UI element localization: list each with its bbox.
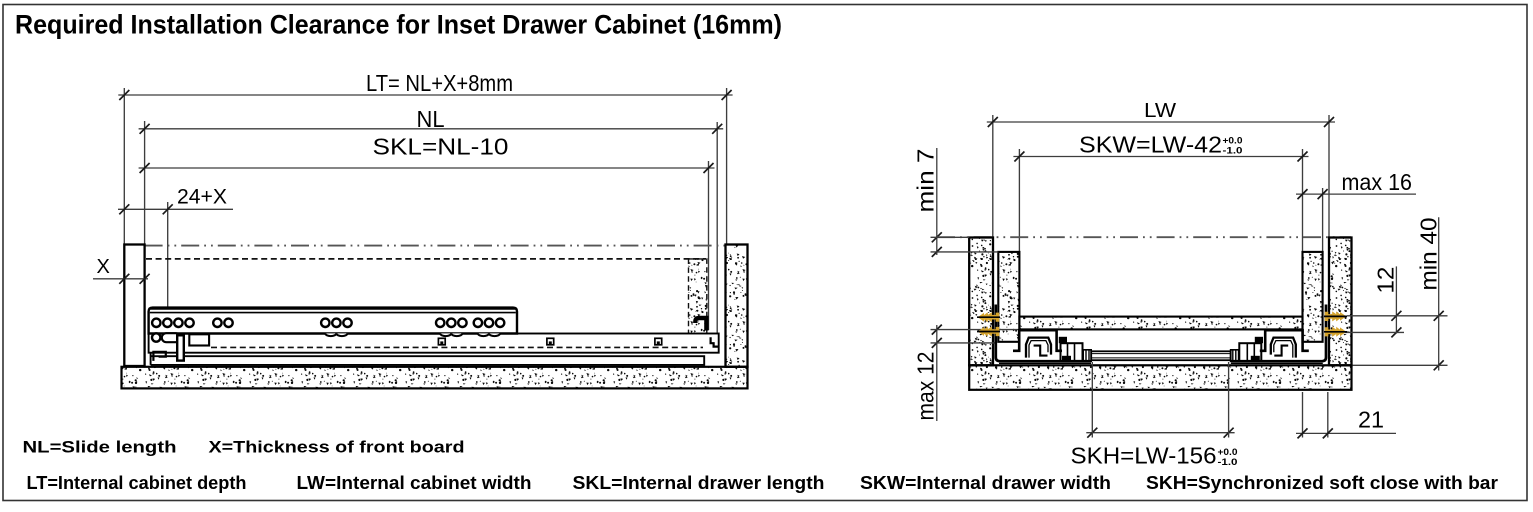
svg-text:LW: LW	[1144, 100, 1176, 122]
svg-text:SKH=Synchronized soft close wi: SKH=Synchronized soft close with bar	[1146, 473, 1498, 493]
svg-text:-1.0: -1.0	[1223, 146, 1243, 157]
svg-text:-1.0: -1.0	[1218, 457, 1238, 468]
svg-text:24+X: 24+X	[177, 185, 227, 208]
svg-text:min 7: min 7	[913, 149, 939, 213]
svg-text:max 16: max 16	[1342, 169, 1413, 195]
svg-text:NL: NL	[417, 106, 445, 132]
svg-text:21: 21	[1358, 407, 1384, 433]
svg-text:12: 12	[1373, 267, 1399, 294]
svg-text:X=Thickness of front board: X=Thickness of front board	[209, 438, 465, 457]
svg-text:SKL=NL-10: SKL=NL-10	[373, 133, 509, 159]
svg-text:max 12: max 12	[913, 352, 939, 421]
svg-text:LW=Internal cabinet width: LW=Internal cabinet width	[297, 473, 532, 493]
svg-text:SKW=LW-42: SKW=LW-42	[1079, 132, 1222, 158]
svg-text:SKL=Internal drawer length: SKL=Internal drawer length	[573, 473, 825, 493]
svg-text:Required Installation Clearanc: Required Installation Clearance for Inse…	[15, 10, 782, 40]
svg-text:X: X	[97, 256, 110, 278]
svg-text:LT= NL+X+8mm: LT= NL+X+8mm	[366, 70, 513, 96]
svg-text:SKW=Internal drawer width: SKW=Internal drawer width	[860, 473, 1111, 493]
svg-text:LT=Internal cabinet depth: LT=Internal cabinet depth	[27, 473, 247, 493]
svg-text:SKH=LW-156: SKH=LW-156	[1071, 443, 1217, 469]
svg-text:NL=Slide length: NL=Slide length	[23, 438, 177, 457]
svg-text:min 40: min 40	[1416, 218, 1442, 291]
